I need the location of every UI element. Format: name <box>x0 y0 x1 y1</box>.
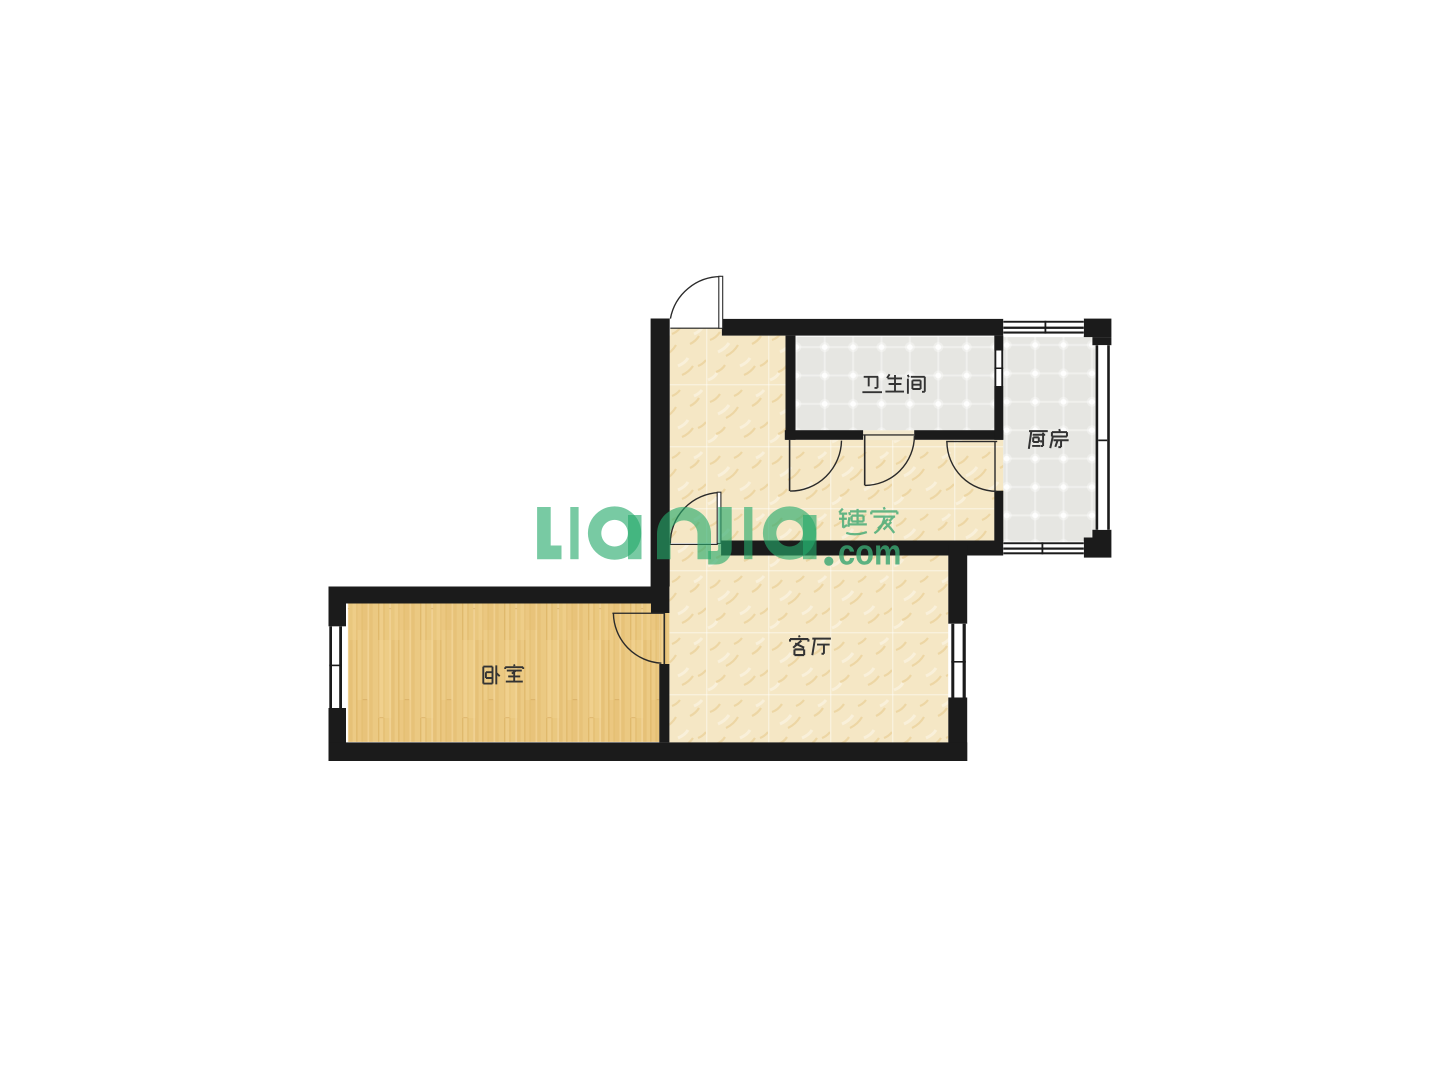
svg-text:com: com <box>838 532 902 573</box>
